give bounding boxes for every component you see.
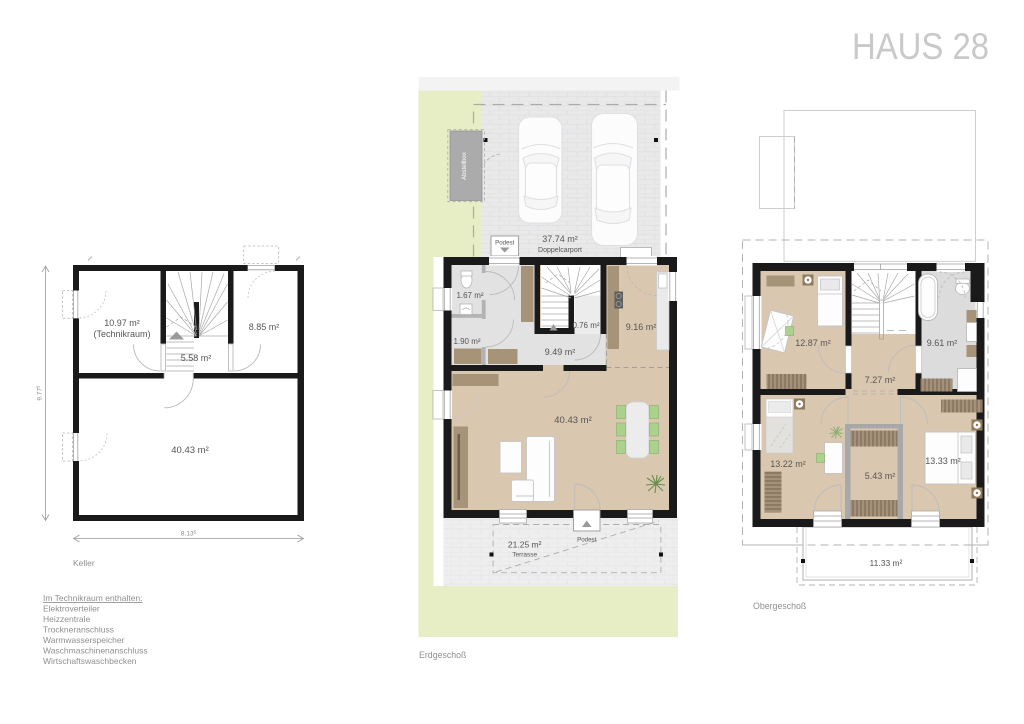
svg-text:21.25 m²: 21.25 m² <box>508 540 542 550</box>
svg-text:Doppelcarport: Doppelcarport <box>538 247 582 254</box>
svg-text:37.74 m²: 37.74 m² <box>542 234 578 244</box>
svg-text:Terrasse: Terrasse <box>512 552 537 559</box>
svg-text:0.76 m²: 0.76 m² <box>572 321 599 330</box>
svg-text:HAUS 28: HAUS 28 <box>852 26 989 67</box>
svg-text:Abstellbox: Abstellbox <box>462 152 468 180</box>
svg-text:Waschmaschinenanschluss: Waschmaschinenanschluss <box>43 646 148 656</box>
svg-text:Trockneranschluss: Trockneranschluss <box>43 625 114 635</box>
svg-text:8.85 m²: 8.85 m² <box>249 322 280 332</box>
svg-text:(Technikraum): (Technikraum) <box>93 329 150 339</box>
svg-text:7.27 m²: 7.27 m² <box>865 375 896 385</box>
svg-text:9.16 m²: 9.16 m² <box>626 322 657 332</box>
svg-text:13.33 m²: 13.33 m² <box>925 456 961 466</box>
svg-text:Wirtschaftswaschbecken: Wirtschaftswaschbecken <box>43 656 137 666</box>
svg-text:1.90 m²: 1.90 m² <box>453 337 480 346</box>
svg-text:Elektroverteiler: Elektroverteiler <box>43 604 100 614</box>
svg-text:Erdgeschoß: Erdgeschoß <box>419 650 467 660</box>
svg-text:9.49 m²: 9.49 m² <box>545 347 576 357</box>
svg-text:40.43 m²: 40.43 m² <box>554 415 592 426</box>
svg-text:Warmwasserspeicher: Warmwasserspeicher <box>43 635 125 645</box>
svg-text:Heizzentrale: Heizzentrale <box>43 614 91 624</box>
svg-text:Obergeschoß: Obergeschoß <box>753 601 807 611</box>
svg-text:13.22 m²: 13.22 m² <box>770 459 806 469</box>
svg-text:12.87 m²: 12.87 m² <box>795 338 831 348</box>
svg-text:Im Technikraum enthalten:: Im Technikraum enthalten: <box>43 593 143 603</box>
svg-text:10.97 m²: 10.97 m² <box>104 318 140 328</box>
svg-text:11.33 m²: 11.33 m² <box>870 558 903 568</box>
svg-text:Keller: Keller <box>73 558 95 568</box>
svg-text:40.43 m²: 40.43 m² <box>171 445 209 456</box>
svg-text:9.61 m²: 9.61 m² <box>927 338 958 348</box>
svg-text:Podest: Podest <box>495 240 515 247</box>
svg-text:5.43 m²: 5.43 m² <box>865 471 896 481</box>
svg-text:Podest: Podest <box>577 537 597 544</box>
svg-text:5.58 m²: 5.58 m² <box>181 353 212 363</box>
svg-text:1.67 m²: 1.67 m² <box>456 291 483 300</box>
